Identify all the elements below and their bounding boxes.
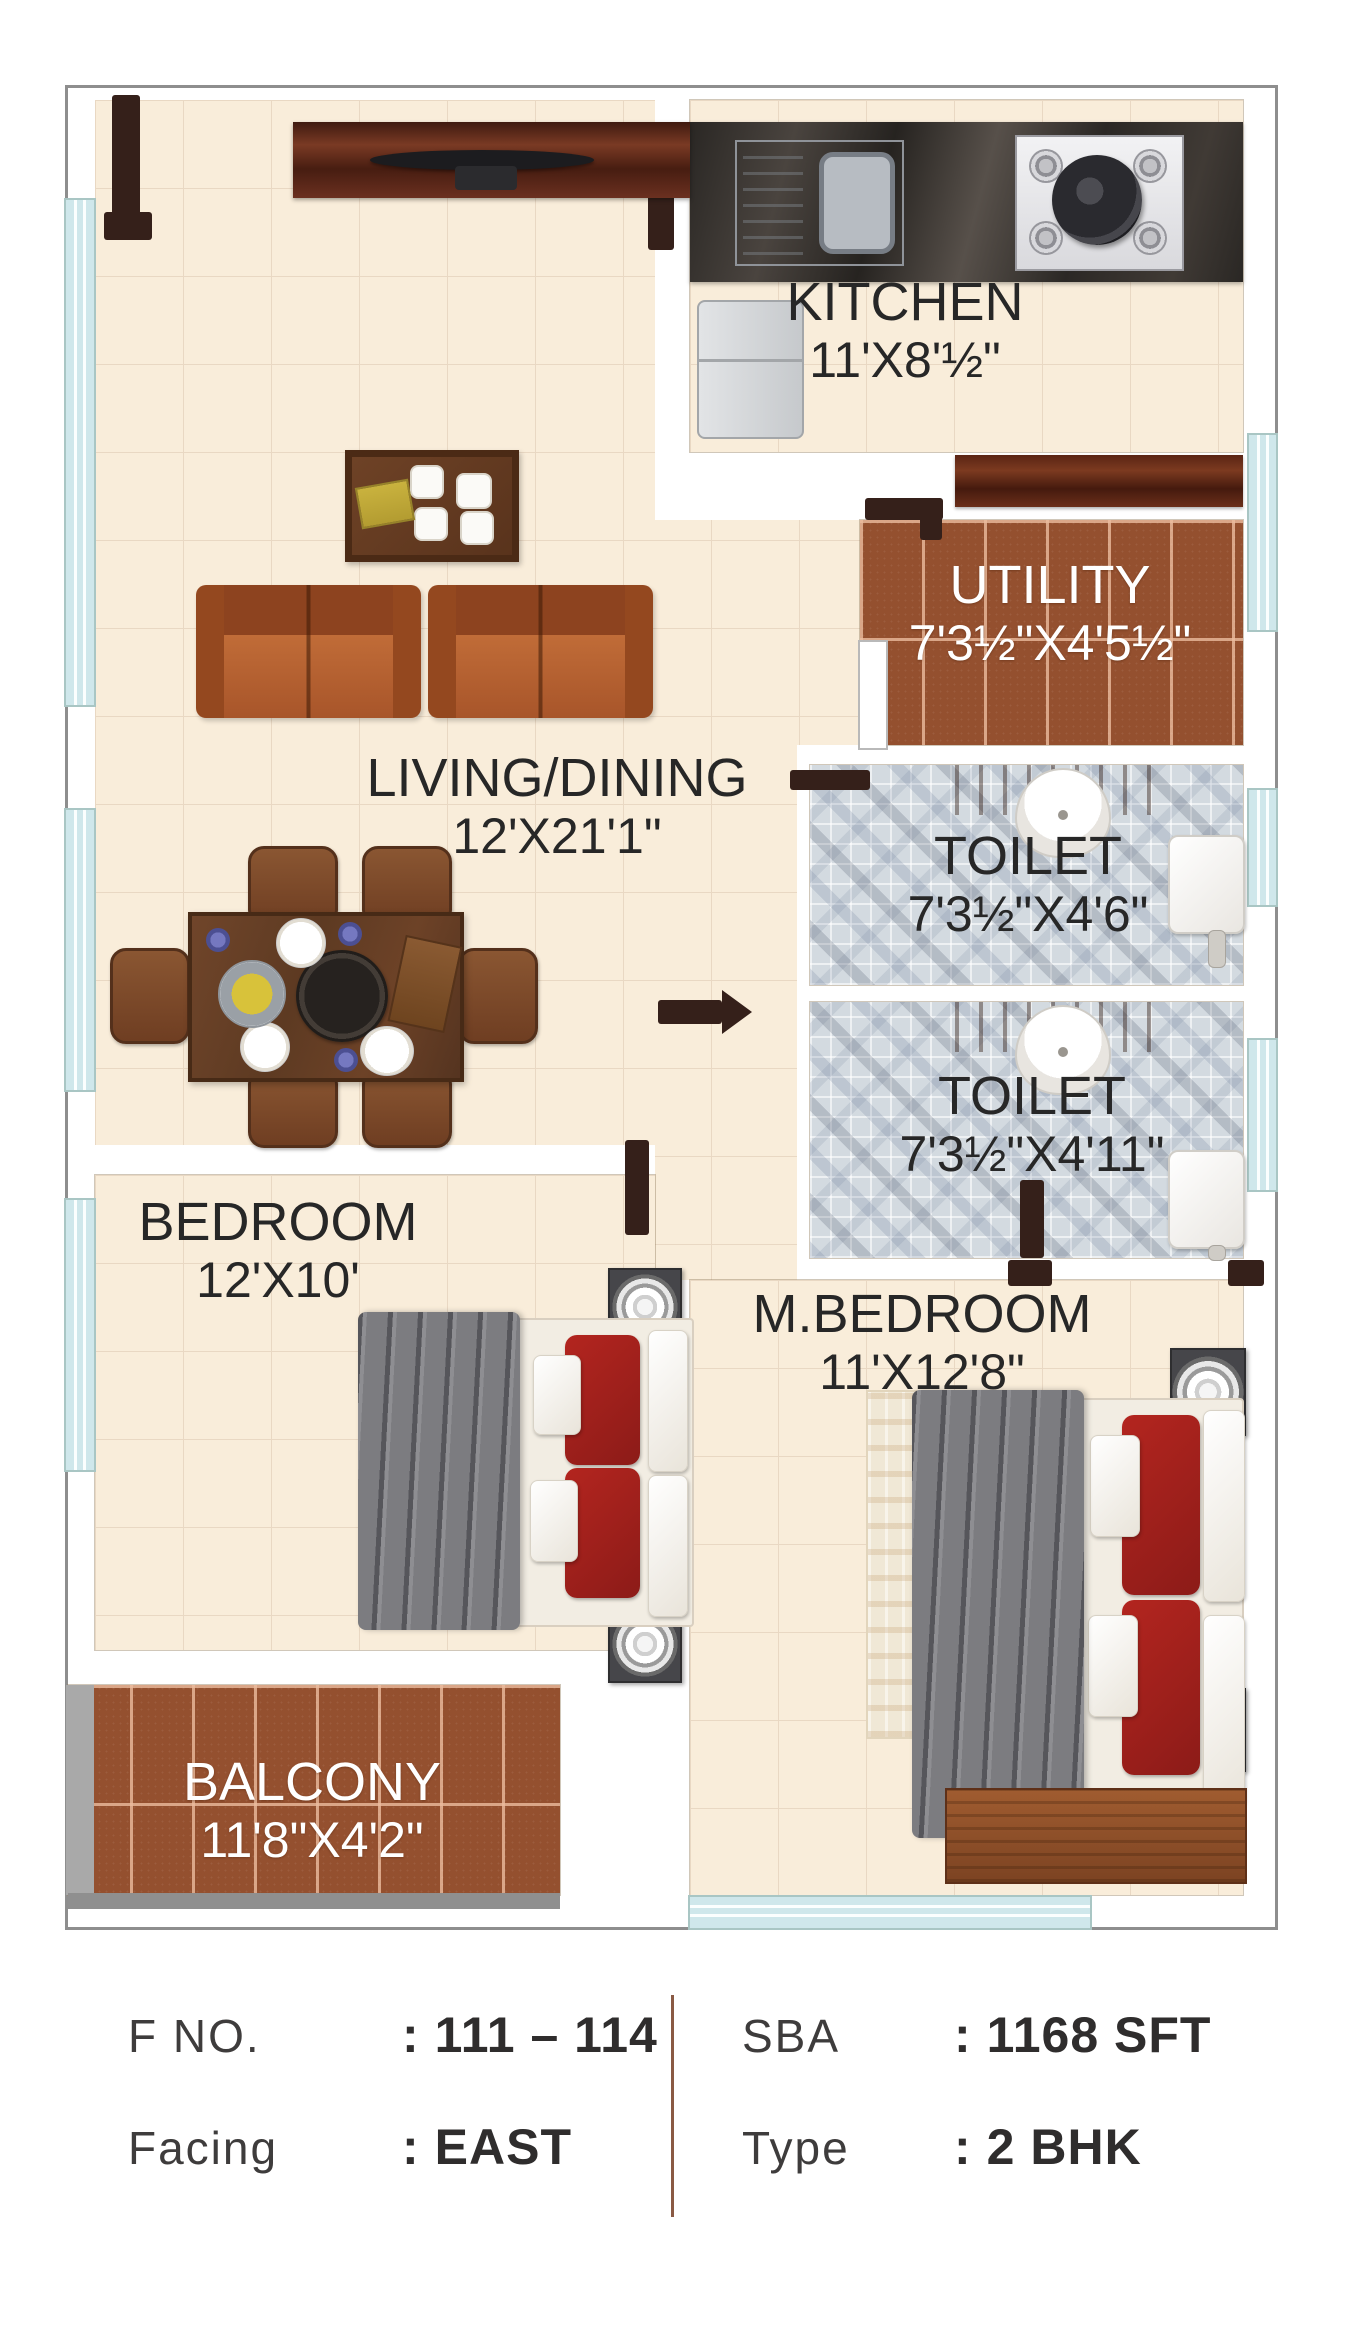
room-label-kitchen: KITCHEN 11'X8'½"	[786, 272, 1023, 388]
plate-icon	[414, 507, 448, 541]
room-name: BEDROOM	[138, 1192, 417, 1252]
salad-bowl-icon	[218, 960, 286, 1028]
white-pillow-icon	[1090, 1435, 1140, 1537]
balcony-bottom-wall	[68, 1893, 560, 1909]
sba-label: SBA	[742, 2009, 938, 2063]
room-name: TOILET	[908, 826, 1149, 886]
toilet-cistern-icon	[1168, 835, 1245, 934]
dining-table	[188, 912, 464, 1082]
window-right-toilet-top	[1249, 790, 1276, 905]
info-row-flat-number: F NO. : 111 – 114	[128, 2006, 658, 2064]
white-pillow-icon	[1203, 1410, 1245, 1602]
floorplan-page: KITCHEN 11'X8'½" UTILITY 7'3½"X4'5½" TOI…	[0, 0, 1345, 2330]
sba-value: 1168 SFT	[987, 2006, 1212, 2064]
room-name: BALCONY	[183, 1752, 441, 1812]
type-colon: :	[954, 2118, 971, 2176]
room-name: LIVING/DINING	[366, 748, 747, 808]
info-row-type: Type : 2 BHK	[742, 2118, 1142, 2176]
toilet-top-door-jamb-icon	[790, 770, 870, 790]
window-bottom-master-bedroom	[690, 1897, 1090, 1928]
type-value: 2 BHK	[987, 2118, 1142, 2176]
room-label-toilet-bottom: TOILET 7'3½"X4'11"	[900, 1066, 1165, 1182]
info-row-facing: Facing : EAST	[128, 2118, 572, 2176]
napkin-ring-icon	[206, 928, 230, 952]
master-bedroom-door-jamb-left-icon	[1008, 1260, 1052, 1286]
corridor-door-swing-icon	[658, 1000, 722, 1024]
room-dims: 11'X8'½"	[786, 332, 1023, 388]
white-pillow-icon	[530, 1480, 578, 1562]
facing-colon: :	[402, 2118, 419, 2176]
window-left-dining	[66, 810, 94, 1090]
toilet-bottom-door-leaf-icon	[1020, 1180, 1044, 1258]
napkin-ring-icon	[334, 1048, 358, 1072]
room-name: TOILET	[900, 1066, 1165, 1126]
room-dims: 7'3½"X4'6"	[908, 886, 1149, 942]
tv-stand-icon	[455, 166, 517, 190]
master-bedroom-door-jamb-right-icon	[1228, 1260, 1264, 1286]
stove-burner-icon	[1133, 149, 1167, 183]
info-row-sba: SBA : 1168 SFT	[742, 2006, 1211, 2064]
room-name: KITCHEN	[786, 272, 1023, 332]
type-label: Type	[742, 2121, 938, 2175]
white-pillow-icon	[648, 1475, 688, 1617]
white-pillow-icon	[648, 1330, 688, 1472]
plate-icon	[360, 1026, 414, 1076]
utility-door-leaf-icon	[920, 498, 942, 540]
flat-number-value: 111 – 114	[435, 2006, 658, 2064]
coffee-table	[345, 450, 519, 562]
plate-icon	[240, 1022, 290, 1072]
plate-icon	[456, 473, 492, 509]
plate-icon	[410, 465, 444, 499]
master-bedroom-blanket	[912, 1390, 1084, 1838]
flat-number-label: F NO.	[128, 2009, 386, 2063]
bedroom-door-leaf-icon	[625, 1140, 649, 1235]
book-icon	[355, 479, 415, 530]
stove-burner-icon	[1029, 221, 1063, 255]
kitchen-sink-unit	[735, 140, 904, 266]
plate-icon	[276, 918, 326, 968]
white-pillow-icon	[533, 1355, 581, 1435]
room-label-master-bedroom: M.BEDROOM 11'X12'8"	[752, 1284, 1091, 1400]
utility-door-slab	[858, 640, 888, 750]
sba-colon: :	[954, 2006, 971, 2064]
bedroom-blanket	[358, 1312, 520, 1630]
room-label-balcony: BALCONY 11'8"X4'2"	[183, 1752, 441, 1868]
room-name: M.BEDROOM	[752, 1284, 1091, 1344]
toilet-pipe-icon	[1208, 1245, 1226, 1261]
room-dims: 12'X21'1"	[366, 808, 747, 864]
facing-value: EAST	[435, 2118, 572, 2176]
stove-burner-icon	[1133, 221, 1167, 255]
room-dims: 12'X10'	[138, 1252, 417, 1308]
room-dims: 7'3½"X4'11"	[900, 1126, 1165, 1182]
toilet-cistern-icon	[1168, 1150, 1245, 1249]
balcony-left-wall	[66, 1685, 94, 1895]
dining-chair	[110, 948, 190, 1044]
room-label-toilet-top: TOILET 7'3½"X4'6"	[908, 826, 1149, 942]
napkin-ring-icon	[338, 922, 362, 946]
sofa-left	[196, 585, 421, 718]
cooking-pan-icon	[1052, 155, 1142, 245]
window-left-living	[66, 200, 94, 705]
dining-chair	[458, 948, 538, 1044]
flat-number-colon: :	[402, 2006, 419, 2064]
sink-bowl-icon	[819, 152, 895, 254]
white-pillow-icon	[1088, 1615, 1138, 1717]
room-label-living-dining: LIVING/DINING 12'X21'1"	[366, 748, 747, 864]
white-pillow-icon	[1203, 1615, 1245, 1807]
entrance-door-swing-icon	[112, 95, 140, 225]
room-dims: 7'3½"X4'5½"	[909, 615, 1192, 671]
info-divider	[671, 1995, 674, 2217]
wardrobe	[945, 1788, 1247, 1884]
entrance-door-jamb-icon	[104, 212, 152, 240]
room-name: UTILITY	[909, 555, 1192, 615]
serving-tray-icon	[387, 935, 462, 1033]
plate-icon	[460, 511, 494, 545]
window-right-toilet-bottom	[1249, 1040, 1276, 1190]
room-dims: 11'8"X4'2"	[183, 1812, 441, 1868]
room-label-bedroom: BEDROOM 12'X10'	[138, 1192, 417, 1308]
room-dims: 11'X12'8"	[752, 1344, 1091, 1400]
window-left-bedroom	[66, 1200, 94, 1470]
room-label-utility: UTILITY 7'3½"X4'5½"	[909, 555, 1192, 671]
window-right-kitchen	[1249, 435, 1276, 630]
toilet-pipe-icon	[1208, 930, 1226, 968]
kitchen-lower-cabinet	[955, 455, 1243, 507]
sofa-right	[428, 585, 653, 718]
facing-label: Facing	[128, 2121, 386, 2175]
